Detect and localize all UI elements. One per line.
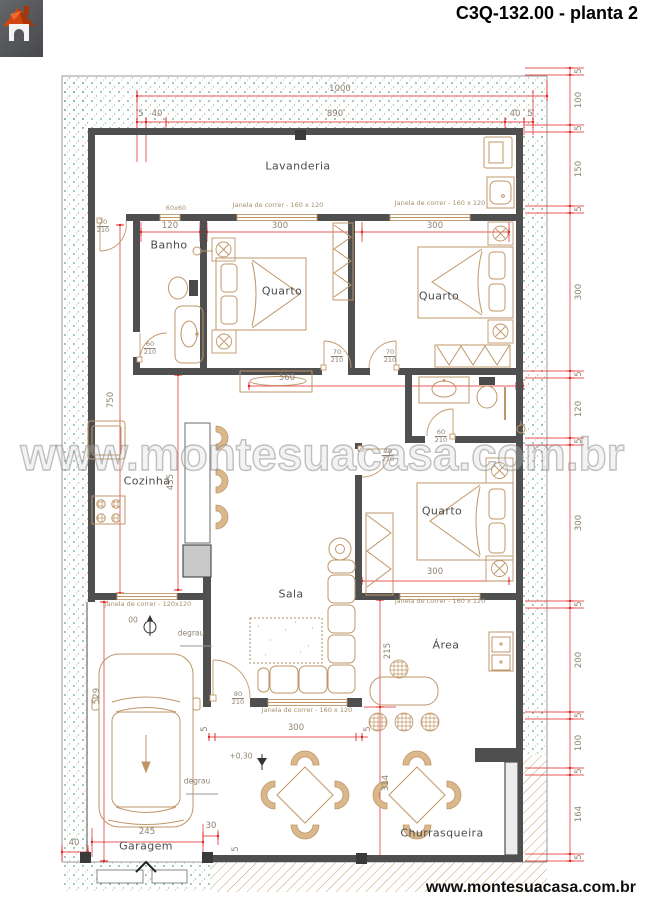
dim-label: 40: [152, 109, 163, 119]
dim-step-30: 30: [206, 821, 217, 831]
dim-right: 5: [574, 601, 584, 606]
dim-right: 5: [574, 768, 584, 773]
dim-setback-40: 40: [69, 838, 80, 848]
page-title: C3Q-132.00 - planta 2: [456, 3, 638, 24]
room-label-quarto-1: Quarto: [262, 285, 302, 298]
dim-wall-5: 5: [200, 726, 210, 731]
counter-stools: [216, 426, 228, 529]
window-label-cozinha: Janela de correr - 120x120: [105, 600, 192, 608]
floor-plan-drawing: [0, 0, 645, 900]
toilet-banho: [169, 277, 199, 299]
dim-right: 300: [574, 515, 584, 531]
dim-sala-300: 300: [288, 723, 304, 733]
room-label-quarto-2: Quarto: [419, 290, 459, 303]
washing-machine: [484, 137, 512, 168]
door-height: 210: [384, 357, 396, 364]
dim-garage-529: 529: [92, 688, 102, 704]
paving-hatch: [210, 755, 547, 892]
dim-right: 5: [574, 371, 584, 376]
note-degrau-2: degrau: [184, 777, 211, 786]
dim-label: 5: [527, 109, 532, 119]
dim-wall-5: 5: [363, 726, 373, 731]
door-height: 210: [97, 227, 109, 234]
room-label-lavanderia: Lavanderia: [265, 160, 330, 173]
dim-left-750: 750: [106, 392, 116, 408]
level-marker-icon: [257, 754, 267, 770]
rug: [250, 618, 322, 663]
dim-quarto2-300: 300: [427, 221, 443, 231]
gates: [97, 870, 187, 883]
door-label-bath2: 60210: [435, 429, 447, 445]
door-label-quarto-1: 70210: [331, 349, 343, 365]
room-label-churrasqueira: Churrasqueira: [400, 827, 483, 840]
fan-symbols: [212, 222, 513, 581]
door-height: 210: [144, 349, 156, 356]
room-label-quarto-3: Quarto: [422, 505, 462, 518]
laundry-tank: [487, 177, 514, 208]
area-counter: [489, 632, 513, 671]
toilet-bath2: [477, 377, 497, 408]
dim-right: 5: [574, 712, 584, 717]
dim-house-width: 890: [327, 109, 343, 119]
door-height: 210: [382, 456, 394, 463]
room-label-cozinha: Cozinha: [124, 475, 171, 488]
note-level: +0,30: [230, 752, 253, 761]
step-lines: [180, 646, 218, 794]
dim-lot-width: 1000: [329, 84, 351, 94]
dim-hall-560: 560: [279, 373, 295, 383]
window-label-sala: Janela de correr - 160 x 120: [262, 706, 353, 714]
footer-site-url: www.montesuacasa.com.br: [426, 879, 636, 897]
dim-right: 5: [574, 125, 584, 130]
car: [92, 654, 200, 827]
door-label-quarto-3: 70210: [382, 448, 394, 464]
house-logo-icon: [0, 0, 37, 44]
floor-plan-page: C3Q-132.00 - planta 2 www.montesuacasa.c…: [0, 0, 645, 900]
dim-label: 5: [138, 109, 143, 119]
sofa: [258, 560, 355, 693]
door-height: 210: [435, 437, 447, 444]
window-label-q1: Janela de correr - 160 x 120: [233, 201, 324, 209]
montesuacasa-logo: [0, 0, 43, 57]
dim-right: 100: [574, 735, 584, 751]
dim-right: 5: [574, 206, 584, 211]
room-label-area: Área: [433, 639, 460, 652]
dim-right: 5: [574, 68, 584, 73]
dim-right: 120: [574, 401, 584, 417]
kitchen-counter: [185, 423, 210, 543]
door-label-banho: 60210: [144, 341, 156, 357]
dim-garage-245: 245: [139, 827, 155, 837]
window-label-q2: Janela de correr - 160 x 120: [395, 199, 486, 207]
dim-right: 5: [574, 438, 584, 443]
dim-quarto1-300: 300: [272, 221, 288, 231]
bed-quarto-3: [417, 483, 513, 560]
note-north: 00: [128, 616, 138, 625]
dim-right: 164: [574, 806, 584, 822]
area-chairs: [369, 660, 439, 731]
dim-wall-5: 5: [231, 846, 241, 851]
door-label-entry: 70210: [97, 219, 109, 235]
dim-quarto3-300: 300: [427, 567, 443, 577]
door-height: 210: [331, 357, 343, 364]
note-degrau-1: degrau: [178, 629, 205, 638]
bed-quarto-2: [418, 247, 513, 318]
lot-boundary: [62, 76, 547, 862]
dim-area-215: 215: [383, 643, 393, 659]
sink-banho: [175, 306, 203, 363]
dim-right: 300: [574, 284, 584, 300]
door-label-quarto-2: 70210: [384, 349, 396, 365]
room-label-garagem: Garagem: [119, 840, 173, 853]
wardrobe-quarto-3: [366, 513, 393, 595]
window-label-60x60: 60x60: [166, 204, 186, 212]
sink-bath2: [419, 377, 469, 403]
window-label-q3: janela de correr - 160 x 120: [395, 597, 486, 605]
side-table: [329, 538, 351, 560]
dimension-lines: [62, 68, 584, 861]
bbq-table-1: [261, 751, 349, 839]
dim-churras-314: 314: [381, 775, 391, 791]
dim-right: 100: [574, 92, 584, 108]
dim-435: 435: [166, 474, 176, 490]
dim-right: 200: [574, 652, 584, 668]
door-label-sala: 80210: [232, 691, 244, 707]
dim-right: 150: [574, 161, 584, 177]
room-label-banho: Banho: [151, 239, 188, 252]
north-arrow-icon: [144, 615, 156, 636]
dim-right: 5: [574, 854, 584, 859]
dim-label: 40: [510, 109, 521, 119]
room-label-sala: Sala: [278, 588, 303, 601]
wardrobe-quarto-2: [435, 345, 510, 367]
door-height: 210: [232, 699, 244, 706]
dim-banho-120: 120: [162, 221, 178, 231]
